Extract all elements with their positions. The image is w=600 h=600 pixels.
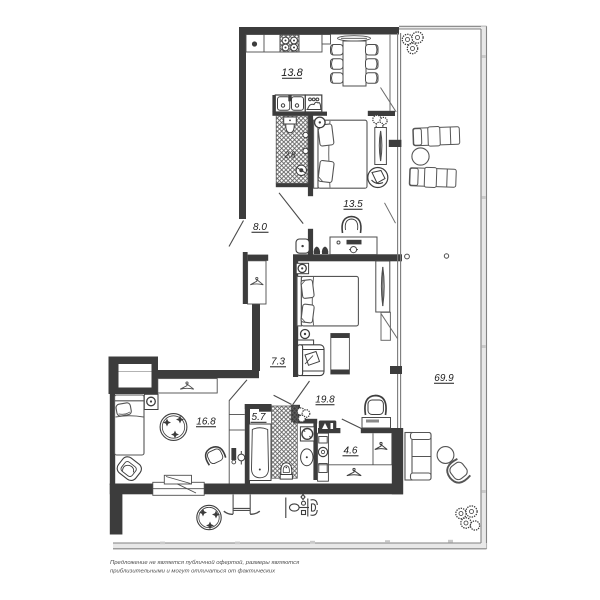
svg-text:Предложение не является публич: Предложение не является публичной оферто…	[110, 559, 300, 566]
svg-text:7.3: 7.3	[271, 357, 285, 368]
svg-text:2.8: 2.8	[283, 151, 296, 160]
svg-text:4.6: 4.6	[344, 446, 358, 457]
svg-text:5.7: 5.7	[252, 412, 266, 423]
svg-text:приблизительными и могут отлич: приблизительными и могут отличаться от ф…	[110, 569, 276, 575]
svg-text:16.8: 16.8	[196, 417, 216, 428]
svg-text:13.8: 13.8	[281, 67, 303, 79]
svg-text:13.5: 13.5	[343, 199, 363, 210]
svg-text:8.0: 8.0	[253, 222, 267, 233]
svg-text:69.9: 69.9	[434, 373, 454, 384]
svg-text:19.8: 19.8	[315, 395, 335, 406]
